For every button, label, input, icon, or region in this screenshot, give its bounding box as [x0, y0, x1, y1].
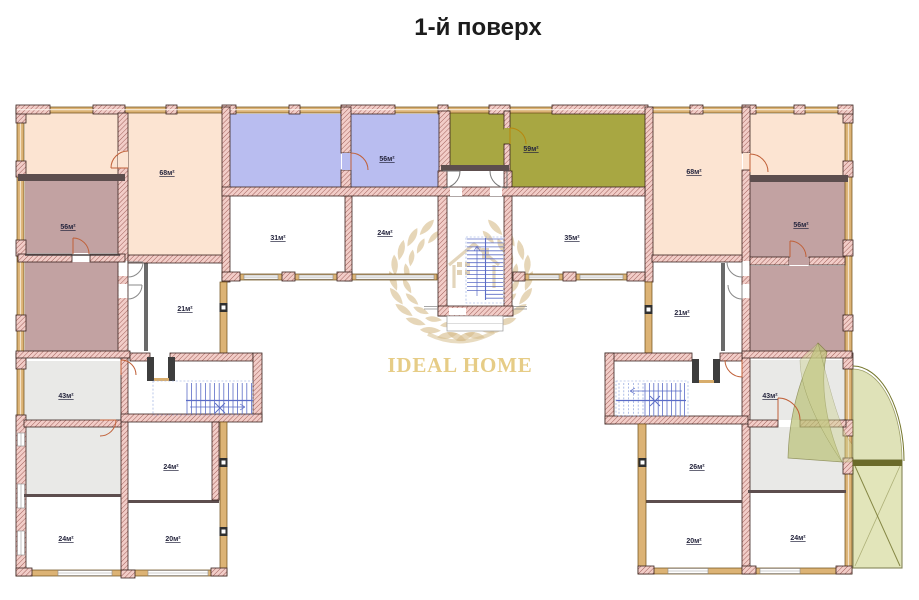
- svg-text:21м²: 21м²: [177, 306, 193, 313]
- svg-text:43м²: 43м²: [58, 393, 74, 400]
- svg-text:35м²: 35м²: [564, 235, 580, 242]
- svg-text:68м²: 68м²: [686, 169, 702, 176]
- svg-text:56м²: 56м²: [379, 156, 395, 163]
- svg-text:1-й поверх: 1-й поверх: [414, 14, 542, 41]
- svg-text:43м²: 43м²: [762, 393, 778, 400]
- svg-text:20м²: 20м²: [686, 538, 702, 545]
- svg-text:24м²: 24м²: [377, 230, 393, 237]
- svg-text:24м²: 24м²: [790, 535, 806, 542]
- svg-text:26м²: 26м²: [689, 464, 705, 471]
- svg-text:56м²: 56м²: [793, 222, 809, 229]
- svg-text:20м²: 20м²: [165, 536, 181, 543]
- svg-text:21м²: 21м²: [674, 310, 690, 317]
- svg-text:IDEAL HOME: IDEAL HOME: [387, 353, 532, 377]
- svg-text:56м²: 56м²: [60, 224, 76, 231]
- svg-text:68м²: 68м²: [159, 170, 175, 177]
- svg-text:31м²: 31м²: [270, 235, 286, 242]
- svg-text:24м²: 24м²: [163, 464, 179, 471]
- svg-text:24м²: 24м²: [58, 536, 74, 543]
- svg-text:59м²: 59м²: [523, 146, 539, 153]
